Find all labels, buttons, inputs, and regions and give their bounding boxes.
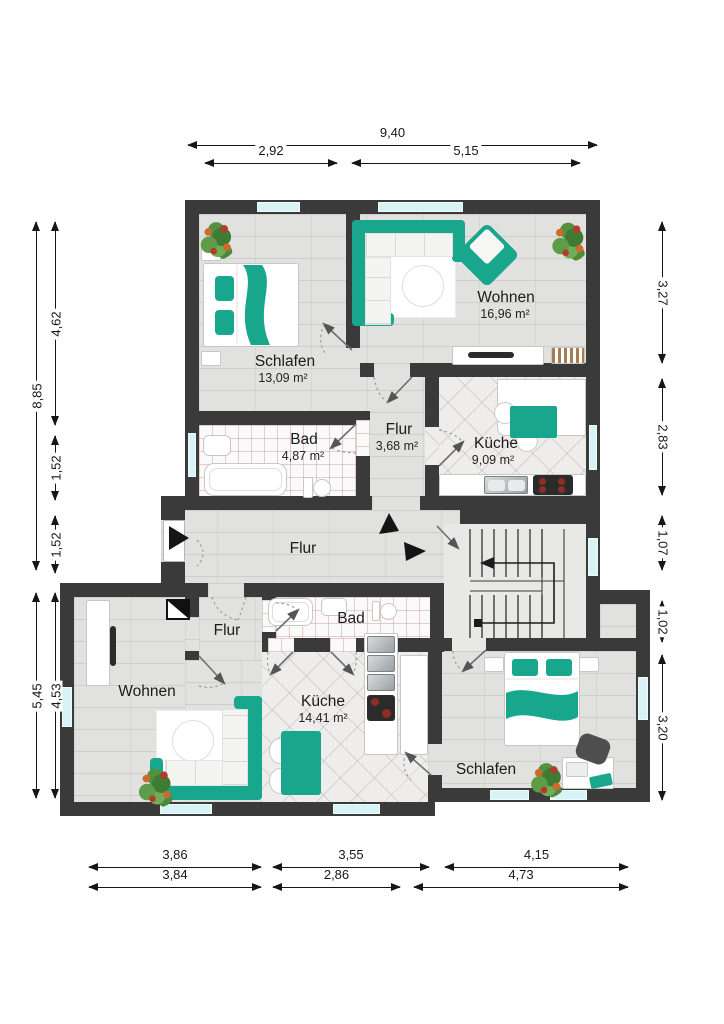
window [490, 790, 529, 800]
room-label-bad-top: Bad [290, 431, 318, 449]
dim-line [188, 145, 597, 146]
sofa-cushions [222, 709, 248, 786]
room-label-kueche-low: Küche [301, 693, 345, 711]
dimension-top-seg2: 5,15 [352, 157, 580, 171]
kitchen-sink [367, 655, 395, 672]
dimension-label: 2,86 [321, 868, 352, 882]
window [188, 433, 196, 477]
dimension-label: 4,62 [50, 308, 63, 339]
arrow-icon [658, 791, 666, 801]
room-area-schlafen-top: 13,09 m² [258, 371, 307, 385]
plant-icon [548, 220, 590, 262]
arrow-icon [351, 159, 361, 167]
arrow-icon [51, 435, 59, 445]
kitchen-table [281, 731, 321, 795]
window [333, 804, 380, 814]
arrow-icon [32, 592, 40, 602]
sofa-cushions [365, 257, 391, 325]
arrow-icon [88, 863, 98, 871]
dimension-label: 4,73 [505, 868, 536, 882]
kitchen-sink [484, 476, 528, 494]
wall [428, 651, 442, 744]
toilet [372, 601, 380, 621]
floor-stair-hall [444, 524, 586, 645]
arrow-icon [51, 789, 59, 799]
window [589, 425, 597, 470]
dimension-label: 5,15 [450, 144, 481, 158]
laptop [566, 762, 588, 777]
room-area-bad-top: 4,87 m² [282, 449, 324, 463]
dim-line [414, 887, 628, 888]
door-opening [356, 420, 370, 456]
arrow-icon [51, 515, 59, 525]
room-area-wohnen-top: 16,96 m² [480, 307, 529, 321]
arrow-icon [658, 354, 666, 364]
toilet [303, 477, 313, 498]
nightstand [201, 351, 221, 366]
room-label-flur-low: Flur [214, 622, 241, 640]
stove [533, 475, 573, 495]
room-label-flur-mid: Flur [290, 540, 317, 558]
dimension-top-total: 9,40 [188, 139, 597, 153]
dimension-label: 9,40 [377, 126, 408, 140]
arrow-icon [619, 883, 629, 891]
chimney-icon [166, 599, 190, 620]
nightstand [484, 657, 504, 672]
wall [60, 583, 430, 597]
arrow-icon [252, 863, 262, 871]
tv-icon [110, 626, 116, 666]
window [160, 804, 212, 814]
corner-sofa [352, 220, 365, 326]
arrow-icon [51, 221, 59, 231]
arrow-icon [32, 789, 40, 799]
sink-basin [508, 480, 525, 491]
arrow-icon [328, 159, 338, 167]
dimension-label: 1,02 [657, 606, 670, 637]
burner [558, 486, 565, 493]
dimension-label: 3,27 [657, 277, 670, 308]
arrow-icon [658, 486, 666, 496]
window [638, 677, 648, 720]
arrow-icon [272, 883, 282, 891]
room-area-kueche-top: 9,09 m² [472, 453, 514, 467]
corner-sofa [234, 696, 262, 709]
wall [161, 510, 185, 520]
dimension-right-327: 3,27 [656, 222, 670, 363]
dimension-label: 2,83 [657, 421, 670, 452]
wall [425, 377, 439, 427]
door-opening [452, 638, 486, 651]
burner [382, 709, 391, 718]
dim-line [273, 887, 400, 888]
arrow-icon [51, 416, 59, 426]
kitchen-sink [367, 636, 395, 653]
dimension-left-545: 5,45 [30, 593, 44, 798]
burner [539, 478, 546, 485]
dimension-right-107: 1,07 [656, 516, 670, 570]
burner [371, 698, 379, 706]
dimension-left-152b: 1,52 [49, 516, 63, 573]
arrow-icon [658, 654, 666, 664]
door-opening [185, 617, 199, 651]
room-label-schlafen-top: Schlafen [255, 353, 315, 371]
dimension-label: 8,85 [31, 380, 44, 411]
dimension-label: 1,52 [50, 529, 63, 560]
dim-line [352, 163, 580, 164]
dimension-left-152a: 1,52 [49, 436, 63, 500]
arrow-icon [252, 883, 262, 891]
plant-icon [197, 220, 237, 260]
toilet [380, 603, 397, 620]
arrow-icon [420, 863, 430, 871]
room-label-bad-low: Bad [337, 610, 365, 628]
wall [410, 363, 430, 377]
dimension-left-462: 4,62 [49, 222, 63, 425]
dimension-bottom-286: 2,86 [273, 881, 400, 895]
window [588, 538, 598, 576]
dimension-label: 3,20 [657, 712, 670, 743]
dimension-right-283: 2,83 [656, 379, 670, 495]
wall [185, 411, 370, 425]
plant-icon [134, 766, 178, 808]
room-label-wohnen-top: Wohnen [477, 289, 534, 307]
room-label-schlafen-low: Schlafen [456, 761, 516, 779]
dimension-label: 1,07 [657, 527, 670, 558]
dimension-label: 3,84 [159, 868, 190, 882]
arrow-icon [204, 159, 214, 167]
tv-board [86, 600, 110, 686]
door-opening [208, 583, 244, 597]
arrow-icon [32, 221, 40, 231]
arrow-icon [658, 515, 666, 525]
room-label-flur-top: Flur [386, 421, 413, 439]
bathtub-basin [272, 602, 309, 622]
door-opening [330, 638, 356, 652]
window [62, 687, 72, 727]
dimension-right-102: 1,02 [656, 601, 670, 642]
door-opening [372, 496, 420, 510]
arrow-icon [413, 883, 423, 891]
floor-plan: Schlafen 13,09 m² Wohnen 16,96 m² Bad 4,… [0, 0, 724, 1024]
floor-nook [600, 604, 636, 638]
door-opening [425, 427, 439, 465]
arrow-icon [51, 564, 59, 574]
arrow-icon [619, 863, 629, 871]
room-label-wohnen-low: Wohnen [118, 683, 175, 701]
bed-linen-icon [505, 653, 579, 745]
dimension-label: 3,55 [335, 848, 366, 862]
wall [430, 583, 444, 652]
arrow-icon [658, 561, 666, 571]
bathtub-basin [209, 468, 282, 491]
toilet [313, 479, 331, 497]
arrow-icon [588, 141, 598, 149]
arrow-icon [444, 863, 454, 871]
arrow-icon [51, 491, 59, 501]
dimension-bottom-384: 3,84 [89, 881, 261, 895]
tv-icon [468, 352, 514, 358]
room-area-kueche-low: 14,41 m² [298, 711, 347, 725]
arrow-icon [391, 883, 401, 891]
burner [539, 486, 546, 493]
dimension-right-320: 3,20 [656, 655, 670, 800]
sink-basin [488, 480, 505, 491]
arrow-icon [88, 883, 98, 891]
entrance-door [163, 520, 185, 562]
arrow-icon [32, 561, 40, 571]
burner [558, 478, 565, 485]
sofa-cushions [365, 233, 453, 257]
coffee-table [402, 265, 444, 307]
corner-sofa [352, 220, 464, 233]
room-area-flur-top: 3,68 m² [376, 439, 418, 453]
arrow-icon [658, 378, 666, 388]
arrow-icon [571, 159, 581, 167]
wall [428, 775, 442, 802]
wall [425, 465, 439, 510]
wall [460, 510, 600, 524]
dimension-label: 4,15 [521, 848, 552, 862]
bed-linen-icon [204, 264, 298, 346]
wall [586, 510, 600, 645]
washbasin [203, 435, 231, 456]
arrow-icon [658, 221, 666, 231]
double-bed [203, 263, 299, 347]
dimension-label: 5,45 [31, 680, 44, 711]
dimension-label: 1,52 [50, 452, 63, 483]
window [378, 202, 463, 212]
arrow-icon [187, 141, 197, 149]
arrow-icon [51, 592, 59, 602]
corner-sofa [248, 696, 262, 800]
dim-line [89, 887, 261, 888]
double-bed [504, 652, 580, 746]
bookshelf [551, 347, 585, 364]
chimney-flag [168, 601, 188, 618]
dim-line [205, 163, 337, 164]
bathtub [268, 598, 313, 626]
stove [367, 695, 395, 721]
plant-icon [528, 762, 566, 798]
bathtub [204, 463, 287, 496]
dimension-top-seg1: 2,92 [205, 157, 337, 171]
dimension-bottom-473: 4,73 [414, 881, 628, 895]
room-label-kueche-top: Küche [474, 435, 518, 453]
dimension-left-885: 8,85 [30, 222, 44, 570]
window [257, 202, 300, 212]
wall [425, 363, 600, 377]
wall [185, 651, 199, 660]
kitchen-table [510, 406, 557, 438]
dimension-left-453: 4,53 [49, 593, 63, 798]
coffee-table [172, 720, 214, 762]
door-opening [374, 363, 410, 377]
wall [360, 363, 374, 377]
door-opening [268, 638, 294, 652]
dimension-label: 2,92 [255, 144, 286, 158]
dimension-label: 4,53 [50, 680, 63, 711]
kitchen-counter [400, 655, 428, 755]
kitchen-sink [367, 674, 395, 691]
arrow-icon [272, 863, 282, 871]
dimension-label: 3,86 [159, 848, 190, 862]
nightstand [579, 657, 599, 672]
